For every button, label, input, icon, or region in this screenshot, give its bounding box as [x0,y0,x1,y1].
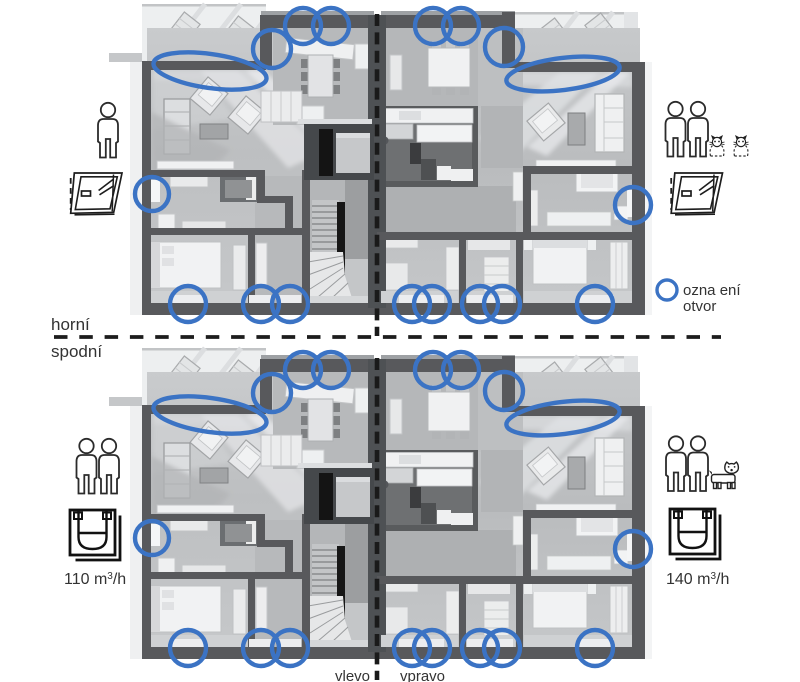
svg-text:140 m3/h: 140 m3/h [666,571,729,588]
svg-text:spodní: spodní [51,342,102,361]
svg-text:otvor: otvor [683,298,716,315]
svg-text:vlevo: vlevo [335,668,370,682]
svg-text:horní: horní [51,315,90,334]
svg-text:ozna ení: ozna ení [683,282,741,299]
svg-text:110 m3/h: 110 m3/h [64,571,126,588]
svg-text:vpravo: vpravo [400,668,445,682]
